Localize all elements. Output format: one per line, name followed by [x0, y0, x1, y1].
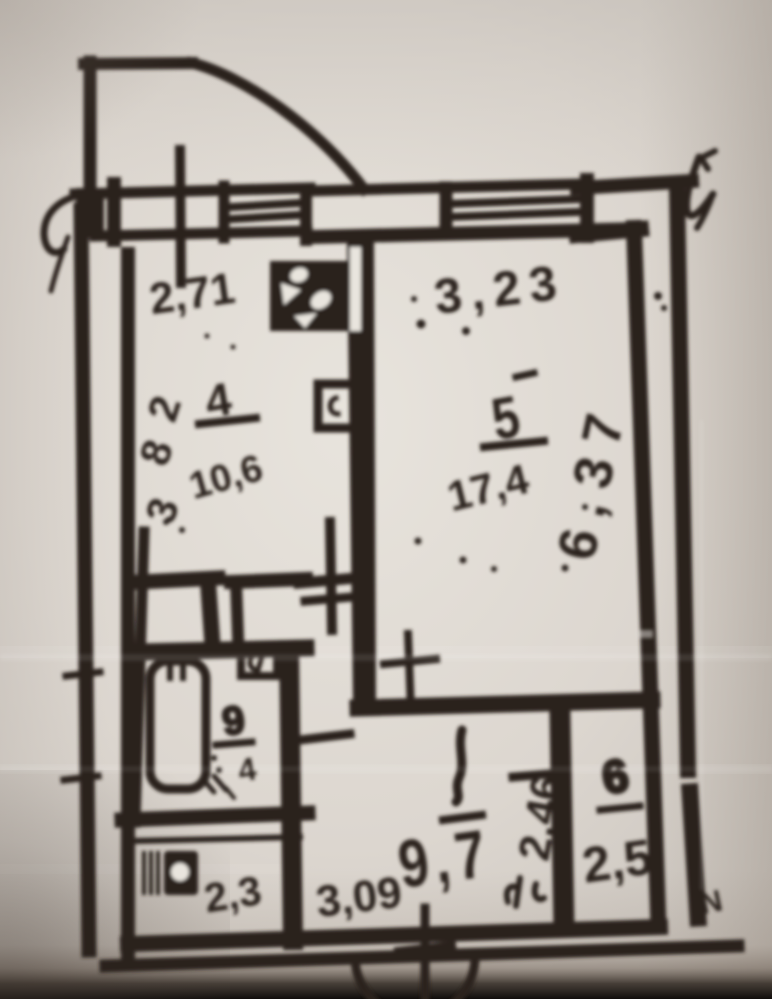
svg-text:2,5: 2,5 [579, 829, 656, 894]
svg-text:3,09: 3,09 [314, 868, 405, 927]
svg-text:2,3: 2,3 [201, 867, 264, 921]
svg-text:9,7: 9,7 [394, 815, 497, 902]
